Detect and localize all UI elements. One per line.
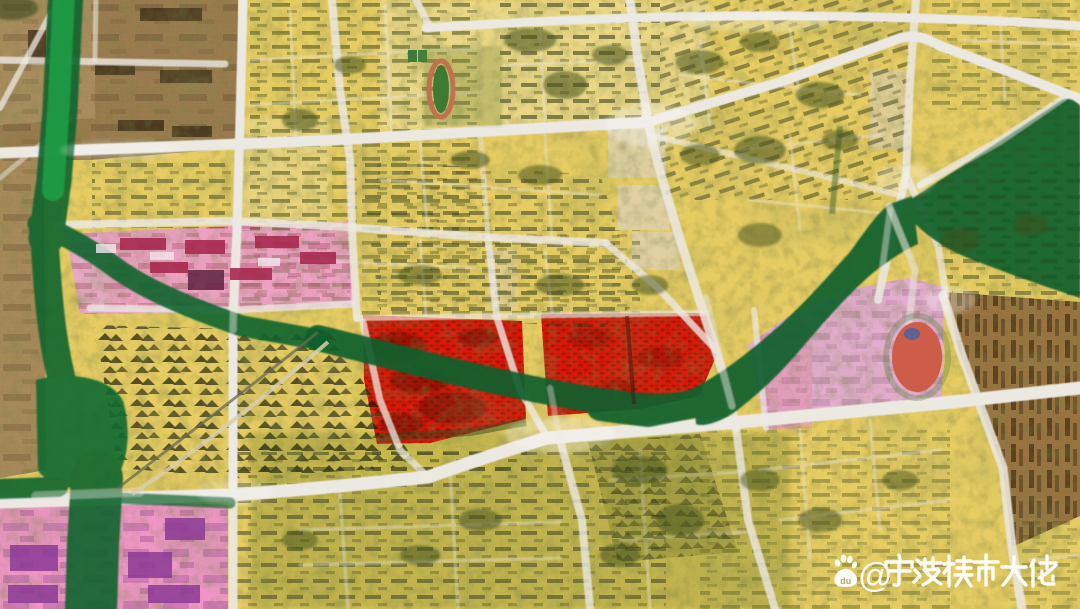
svg-text:du: du [840,576,851,586]
